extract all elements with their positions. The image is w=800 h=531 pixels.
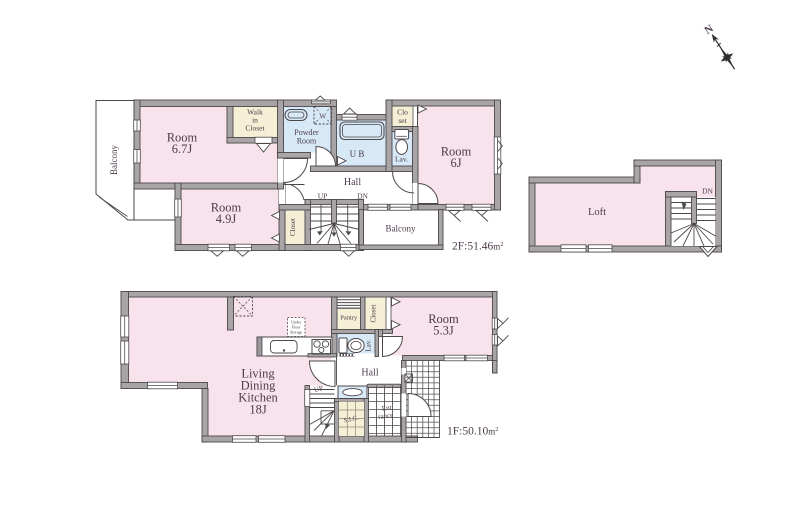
svg-text:1F:50.10m2: 1F:50.10m2	[447, 426, 498, 438]
svg-text:Closet: Closet	[245, 124, 265, 133]
svg-text:4.9J: 4.9J	[216, 212, 237, 226]
svg-text:Lav.: Lav.	[365, 339, 373, 351]
svg-text:Pantry: Pantry	[340, 315, 358, 322]
svg-text:set: set	[398, 116, 407, 125]
svg-text:DN: DN	[702, 187, 713, 196]
svg-text:W: W	[319, 111, 327, 120]
svg-text:rance: rance	[378, 411, 394, 421]
svg-text:Loft: Loft	[588, 207, 606, 218]
svg-text:UP: UP	[318, 192, 328, 201]
svg-text:U B: U B	[350, 149, 365, 159]
svg-text:Storage: Storage	[290, 330, 302, 335]
svg-text:Room: Room	[297, 137, 317, 146]
svg-text:DN: DN	[357, 192, 368, 201]
svg-text:Hall: Hall	[344, 177, 361, 188]
svg-text:N: N	[702, 23, 715, 37]
svg-text:6J: 6J	[450, 156, 461, 170]
svg-text:Hall: Hall	[361, 368, 378, 379]
svg-text:Lav.: Lav.	[395, 155, 408, 164]
svg-text:Closet: Closet	[289, 218, 297, 236]
svg-text:5.3J: 5.3J	[433, 324, 454, 338]
svg-text:2F:51.46m2: 2F:51.46m2	[452, 241, 503, 253]
svg-text:6.7J: 6.7J	[172, 142, 193, 156]
svg-text:18J: 18J	[249, 403, 267, 417]
svg-text:Balcony: Balcony	[386, 224, 416, 234]
svg-text:UP: UP	[313, 384, 324, 394]
svg-text:Balcony: Balcony	[109, 145, 119, 175]
svg-text:Closet: Closet	[370, 305, 378, 323]
